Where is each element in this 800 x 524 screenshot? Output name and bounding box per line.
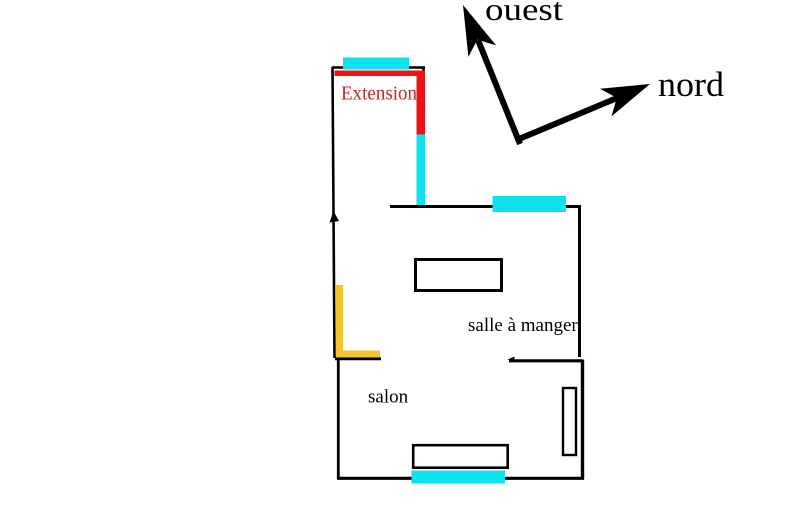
svg-text:salle à manger: salle à manger bbox=[468, 315, 578, 336]
svg-text:salon: salon bbox=[368, 387, 409, 408]
svg-text:Extension: Extension bbox=[341, 83, 417, 105]
svg-text:nord: nord bbox=[658, 65, 725, 104]
svg-text:ouest: ouest bbox=[485, 0, 563, 27]
